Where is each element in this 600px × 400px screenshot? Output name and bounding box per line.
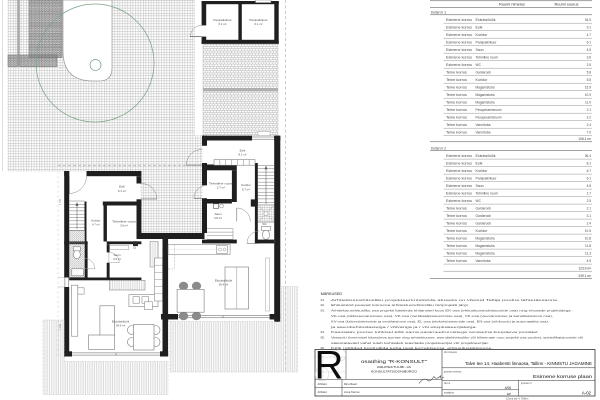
- svg-text:Teine korrus: Teine korrus: [446, 221, 467, 225]
- svg-text:töö nimetus: töö nimetus: [444, 351, 458, 354]
- svg-text:WC: WC: [262, 222, 266, 226]
- svg-text:Panipaik/kuur: Panipaik/kuur: [249, 18, 267, 22]
- svg-text:Esimene korrus: Esimene korrus: [446, 41, 472, 45]
- svg-text:11.8: 11.8: [585, 244, 591, 248]
- svg-text:Esimene korrus: Esimene korrus: [446, 184, 472, 188]
- svg-text:Magamistuba: Magamistuba: [476, 101, 495, 105]
- svg-text:Teine korrus: Teine korrus: [446, 78, 467, 82]
- svg-text:R: R: [315, 344, 344, 388]
- svg-text:11.3: 11.3: [585, 251, 591, 255]
- svg-text:Esimene korrus: Esimene korrus: [446, 18, 472, 22]
- svg-text:03.: 03.: [321, 309, 325, 313]
- svg-text:2.4: 2.4: [587, 123, 592, 127]
- svg-text:Esimene korruse plaan: Esimene korruse plaan: [533, 374, 593, 379]
- svg-text:Teine korrus: Teine korrus: [446, 259, 467, 263]
- svg-text:Teine korrus: Teine korrus: [446, 244, 467, 248]
- svg-text:Garderoob: Garderoob: [476, 221, 492, 225]
- svg-text:Tehniline ruum: Tehniline ruum: [476, 56, 499, 60]
- svg-text:Koridor: Koridor: [91, 218, 100, 222]
- svg-text:Esimene korrus: Esimene korrus: [446, 26, 472, 30]
- svg-text:7.0: 7.0: [587, 131, 592, 135]
- svg-text:Teine korrus: Teine korrus: [446, 214, 467, 218]
- svg-text:8.1: 8.1: [587, 161, 592, 165]
- svg-text:05.: 05.: [321, 336, 325, 340]
- svg-text:4.8 m²: 4.8 m²: [214, 216, 222, 220]
- svg-text:Pesupesemisruum: Pesupesemisruum: [476, 108, 502, 112]
- svg-text:töö nr: töö nr: [444, 382, 451, 385]
- svg-text:11.9: 11.9: [585, 101, 591, 105]
- svg-text:Koridor: Koridor: [476, 33, 489, 37]
- svg-text:Tehniline ruum: Tehniline ruum: [476, 191, 499, 195]
- svg-text:Teine korrus: Teine korrus: [446, 229, 467, 233]
- svg-text:Esimene korrus: Esimene korrus: [446, 56, 472, 60]
- svg-text:2.7: 2.7: [587, 191, 592, 195]
- svg-text:Garderoob: Garderoob: [476, 214, 492, 218]
- svg-text:MÄRKUSED: MÄRKUSED: [321, 292, 343, 296]
- svg-text:Rino Raud: Rino Raud: [344, 382, 357, 386]
- svg-text:Teine korrus: Teine korrus: [446, 206, 467, 210]
- svg-text:4.7: 4.7: [587, 33, 592, 37]
- svg-text:2.1: 2.1: [587, 108, 592, 112]
- svg-text:8.1 m²: 8.1 m²: [239, 153, 247, 157]
- svg-text:ARHITEKTUURI -JA: ARHITEKTUURI -JA: [377, 365, 411, 369]
- svg-text:Teine korrus: Teine korrus: [446, 93, 467, 97]
- svg-text:36.4: 36.4: [585, 154, 591, 158]
- svg-text:Saun: Saun: [476, 48, 484, 52]
- svg-text:9.1: 9.1: [587, 26, 592, 30]
- svg-text:2.5: 2.5: [587, 199, 592, 203]
- svg-text:WC: WC: [476, 199, 482, 203]
- svg-text:Esimene korrus: Esimene korrus: [446, 48, 472, 52]
- svg-text:Arhitekt: Arhitekt: [318, 382, 327, 386]
- svg-text:Esimene korrus: Esimene korrus: [446, 161, 472, 165]
- svg-text:Teine korrus: Teine korrus: [446, 251, 467, 255]
- svg-text:Teine korrus: Teine korrus: [446, 123, 467, 127]
- svg-text:7 200: 7 200: [59, 323, 62, 330]
- svg-text:Teine korrus: Teine korrus: [446, 71, 467, 75]
- svg-text:6.1 m²: 6.1 m²: [255, 22, 263, 26]
- svg-text:Esik: Esik: [476, 161, 483, 165]
- svg-text:5.5: 5.5: [587, 78, 592, 82]
- svg-text:Ruumi suurus: Ruumi suurus: [555, 3, 579, 7]
- svg-text:34.9 m²: 34.9 m²: [116, 324, 126, 328]
- svg-text:staadium: staadium: [444, 391, 454, 394]
- svg-text:Teine korrus: Teine korrus: [446, 86, 467, 90]
- svg-text:EP: EP: [507, 392, 511, 396]
- svg-text:15.9: 15.9: [585, 86, 591, 90]
- svg-text:sätestatavaid vahel tuleb koht: sätestatavaid vahel tuleb kohtadelt teav…: [331, 341, 489, 345]
- svg-text:Magamistuba: Magamistuba: [476, 251, 495, 255]
- svg-text:Teine korrus: Teine korrus: [446, 116, 467, 120]
- svg-text:Vannituba: Vannituba: [476, 259, 491, 263]
- svg-text:6.7: 6.7: [587, 169, 592, 173]
- svg-text:Esimene korrus: Esimene korrus: [446, 154, 472, 158]
- svg-text:04.: 04.: [321, 330, 325, 334]
- svg-text:249.1 m²: 249.1 m²: [578, 274, 591, 278]
- svg-text:Teine korrus: Teine korrus: [446, 108, 467, 112]
- svg-text:Vannituba: Vannituba: [476, 131, 491, 135]
- svg-text:Pesupesemisruum: Pesupesemisruum: [476, 116, 502, 120]
- svg-text:Kasutatav poorse tuhkisel kõik: Kasutatav poorse tuhkisel kõik sama para…: [331, 330, 539, 334]
- svg-text:Teine korrus: Teine korrus: [446, 131, 467, 135]
- svg-text:joonise nr: joonise nr: [520, 382, 532, 385]
- svg-text:Magamistuba: Magamistuba: [476, 86, 495, 90]
- svg-text:osaühing "R-KONSULT": osaühing "R-KONSULT": [361, 359, 427, 365]
- svg-text:Magamistuba: Magamistuba: [476, 236, 495, 240]
- svg-text:Ruumi nimetus: Ruumi nimetus: [499, 3, 525, 7]
- svg-text:Garderoob: Garderoob: [476, 71, 492, 75]
- svg-text:4 150: 4 150: [59, 198, 62, 205]
- svg-text:4.7 m²: 4.7 m²: [92, 222, 100, 226]
- svg-text:5.8: 5.8: [587, 71, 592, 75]
- svg-text:Talve tee 14, Haabersti linnao: Talve tee 14, Haabersti linnaosa, Tallin…: [465, 361, 592, 366]
- svg-text:Elutuba/köök: Elutuba/köök: [476, 154, 496, 158]
- svg-text:Esimene korrus: Esimene korrus: [446, 199, 472, 203]
- svg-text:A-02: A-02: [582, 390, 592, 395]
- svg-text:6.7 m²: 6.7 m²: [242, 187, 250, 191]
- svg-text:Arhitektuurehitusliku osa proj: Arhitektuurehitusliku osa projekti käsit…: [331, 309, 573, 313]
- svg-text:2.4: 2.4: [587, 221, 592, 225]
- svg-text:4.5 m²: 4.5 m²: [113, 257, 121, 261]
- svg-text:ja asendiehituslastelga / võlv: ja asendiehituslastelga / võlvariga ja /…: [329, 325, 477, 329]
- svg-text:Lõuna pst 4, Tallinn: Lõuna pst 4, Tallinn: [506, 396, 529, 400]
- svg-text:VK-osa (välisveevarustuse osa): VK-osa (välisveevarustuse osa), VP-osa (…: [331, 314, 553, 318]
- svg-text:Panipaik/kuur: Panipaik/kuur: [476, 176, 498, 180]
- svg-text:Korter nr 2: Korter nr 2: [431, 146, 446, 150]
- svg-text:10.5: 10.5: [585, 229, 591, 233]
- svg-text:10.8: 10.8: [585, 236, 591, 240]
- svg-text:Koridor: Koridor: [476, 169, 489, 173]
- svg-text:Esimene korrus: Esimene korrus: [446, 63, 472, 67]
- svg-text:Koridor: Koridor: [476, 78, 489, 82]
- svg-text:Elutuba/köök: Elutuba/köök: [476, 18, 496, 22]
- svg-text:02.: 02.: [321, 303, 325, 307]
- svg-text:WC: WC: [476, 63, 482, 67]
- svg-text:Esimene korrus: Esimene korrus: [446, 176, 472, 180]
- svg-text:Magamistuba: Magamistuba: [476, 93, 495, 97]
- svg-text:6.1: 6.1: [587, 41, 592, 45]
- svg-text:Vastuolu ilmnemisel käesoleva: Vastuolu ilmnemisel käesoleva joonise ni…: [331, 336, 583, 340]
- svg-text:Arhitektuurehitusliku projekte: Arhitektuurehitusliku projekteerimistööd…: [331, 298, 559, 302]
- svg-text:Koridor: Koridor: [476, 229, 489, 233]
- svg-text:Anna Tammo: Anna Tammo: [344, 390, 360, 394]
- svg-text:KV-osa (küttesüsteemide ja ven: KV-osa (küttesüsteemide ja ventilatsioon…: [331, 319, 549, 323]
- svg-text:4.5: 4.5: [587, 48, 592, 52]
- svg-text:Garderoob: Garderoob: [476, 206, 492, 210]
- svg-text:3.6: 3.6: [587, 56, 592, 60]
- svg-text:Ehitustööd peavad toimuma arhi: Ehitustööd peavad toimuma arhitektuurehi…: [331, 303, 469, 307]
- svg-text:Teine korrus: Teine korrus: [446, 101, 467, 105]
- svg-text:4.9: 4.9: [587, 259, 592, 263]
- svg-text:Saun: Saun: [476, 184, 484, 188]
- svg-text:Vannituba: Vannituba: [476, 123, 491, 127]
- svg-text:4/06: 4/06: [505, 386, 511, 390]
- svg-text:3.6 m²: 3.6 m²: [120, 223, 128, 227]
- svg-text:2.1: 2.1: [587, 206, 592, 210]
- svg-text:2.2: 2.2: [587, 116, 592, 120]
- svg-text:Korter nr 1: Korter nr 1: [431, 10, 446, 14]
- svg-text:Panipaik/kuur: Panipaik/kuur: [476, 41, 498, 45]
- svg-text:Arhitekt: Arhitekt: [318, 390, 327, 394]
- svg-text:2.5: 2.5: [587, 63, 592, 67]
- svg-text:Esimene korrus: Esimene korrus: [446, 191, 472, 195]
- svg-text:4.8: 4.8: [587, 184, 592, 188]
- svg-text:Tehniline ruum: Tehniline ruum: [112, 219, 137, 223]
- svg-text:6.1: 6.1: [587, 176, 592, 180]
- svg-text:Esimene korrus: Esimene korrus: [446, 169, 472, 173]
- svg-text:123.9 m²: 123.9 m²: [578, 267, 591, 271]
- svg-text:6.1 m²: 6.1 m²: [219, 22, 227, 26]
- svg-text:36.4 m²: 36.4 m²: [219, 283, 229, 287]
- svg-text:Magamistuba: Magamistuba: [476, 244, 495, 248]
- svg-text:3.1: 3.1: [587, 214, 592, 218]
- svg-text:KONSULTATSIOONIBÜROO: KONSULTATSIOONIBÜROO: [371, 370, 418, 374]
- svg-text:Esik: Esik: [476, 26, 483, 30]
- svg-text:01.: 01.: [321, 298, 325, 302]
- svg-text:9.1 m²: 9.1 m²: [118, 189, 126, 193]
- svg-text:Panipaik/kuur: Panipaik/kuur: [213, 18, 231, 22]
- svg-text:34.9: 34.9: [585, 18, 591, 22]
- svg-text:106.1 m²: 106.1 m²: [578, 137, 591, 141]
- svg-text:10.9: 10.9: [585, 93, 591, 97]
- svg-text:2.7 m²: 2.7 m²: [217, 186, 225, 190]
- svg-text:Esimene korrus: Esimene korrus: [446, 33, 472, 37]
- svg-text:joonise nimetus: joonise nimetus: [443, 370, 462, 373]
- svg-text:Teine korrus: Teine korrus: [446, 236, 467, 240]
